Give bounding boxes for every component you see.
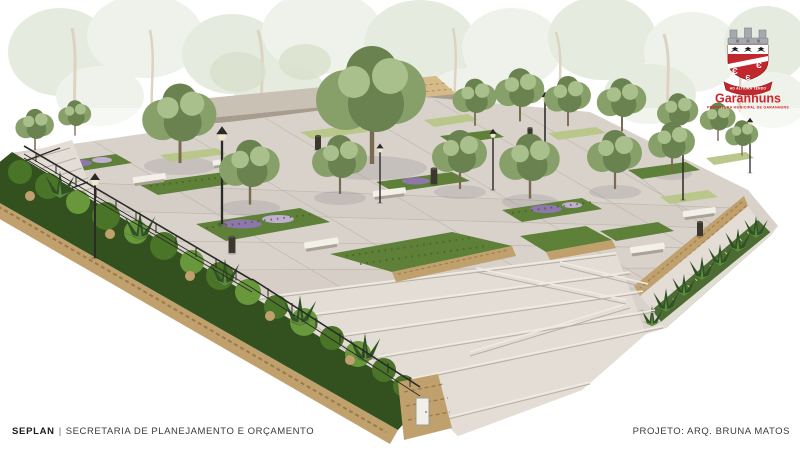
mural-crown-icon — [728, 28, 768, 44]
trash-bin — [696, 221, 704, 238]
presentation-slide: Є Є Є AD ALTIORA TENDO Garanhuns PREFEIT… — [0, 0, 800, 450]
plaza-render — [0, 0, 800, 450]
trash-bin — [227, 236, 236, 255]
garanhuns-city-logo: Є Є Є AD ALTIORA TENDO Garanhuns PREFEIT… — [702, 26, 794, 110]
city-wordmark: Garanhuns — [715, 92, 781, 106]
department-abbr: SEPLAN — [12, 426, 55, 437]
logo-tagline: PREFEITURA MUNICIPAL DE GARANHUNS — [707, 106, 789, 110]
coat-of-arms-shield: Є Є Є — [728, 45, 768, 82]
department-name: SECRETARIA DE PLANEJAMENTO E ORÇAMENTO — [66, 426, 314, 437]
horseshoe-glyph: Є — [756, 61, 762, 70]
project-credit: PROJETO: ARQ. BRUNA MATOS — [633, 426, 790, 437]
trash-bin — [430, 167, 439, 185]
horseshoe-glyph: Є — [732, 67, 738, 76]
service-door — [416, 398, 429, 425]
footer-separator: | — [59, 426, 62, 437]
footer: SEPLAN|SECRETARIA DE PLANEJAMENTO E ORÇA… — [12, 426, 790, 437]
footer-left: SEPLAN|SECRETARIA DE PLANEJAMENTO E ORÇA… — [12, 426, 314, 437]
horseshoe-glyph: Є — [746, 75, 751, 82]
motto-text: AD ALTIORA TENDO — [730, 87, 767, 91]
